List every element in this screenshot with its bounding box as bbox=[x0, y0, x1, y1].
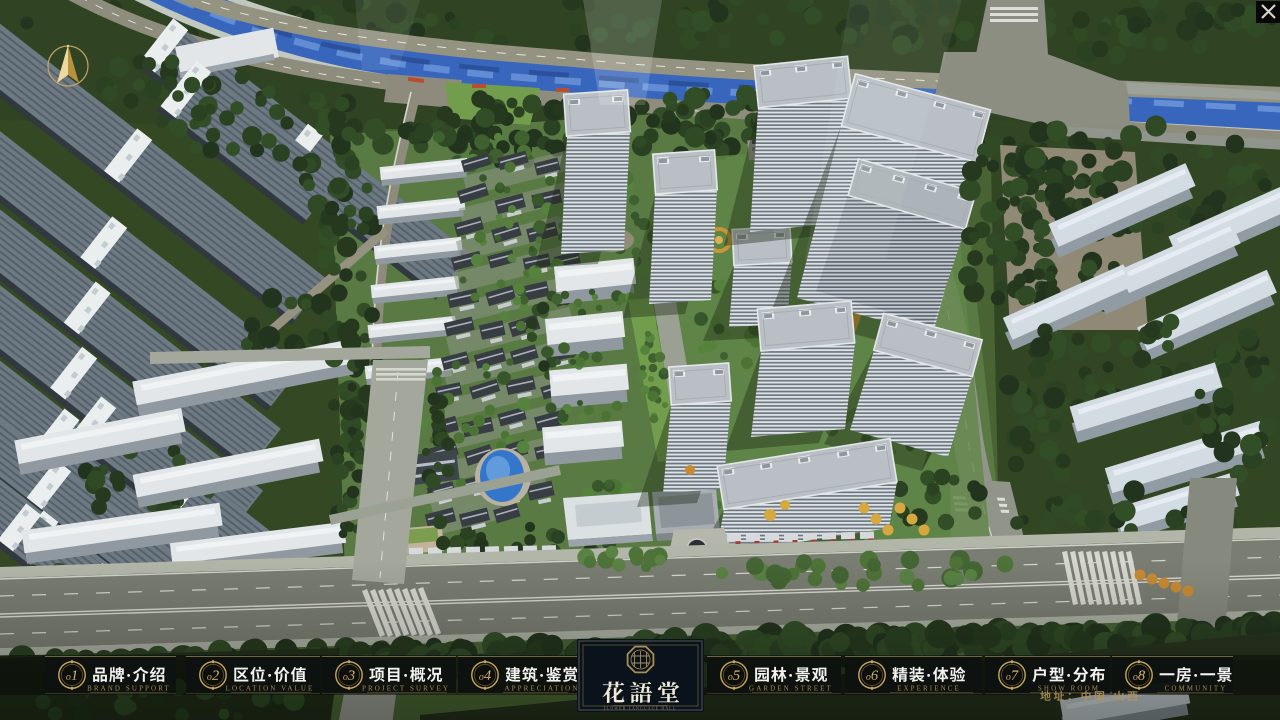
svg-text:EXPERIENCE: EXPERIENCE bbox=[897, 685, 961, 693]
svg-text:FLOWER LANGUAGE HALL: FLOWER LANGUAGE HALL bbox=[604, 707, 677, 711]
svg-text:COMMUNITY: COMMUNITY bbox=[1165, 685, 1228, 693]
svg-text:PROJECT SURVEY: PROJECT SURVEY bbox=[362, 685, 450, 693]
svg-text:GARDEN STREET: GARDEN STREET bbox=[749, 685, 833, 693]
svg-text:BRAND SUPPORT: BRAND SUPPORT bbox=[87, 685, 171, 693]
svg-text:LOCATION VALUE: LOCATION VALUE bbox=[226, 685, 315, 693]
svg-text:APPRECIATION: APPRECIATION bbox=[505, 685, 580, 693]
